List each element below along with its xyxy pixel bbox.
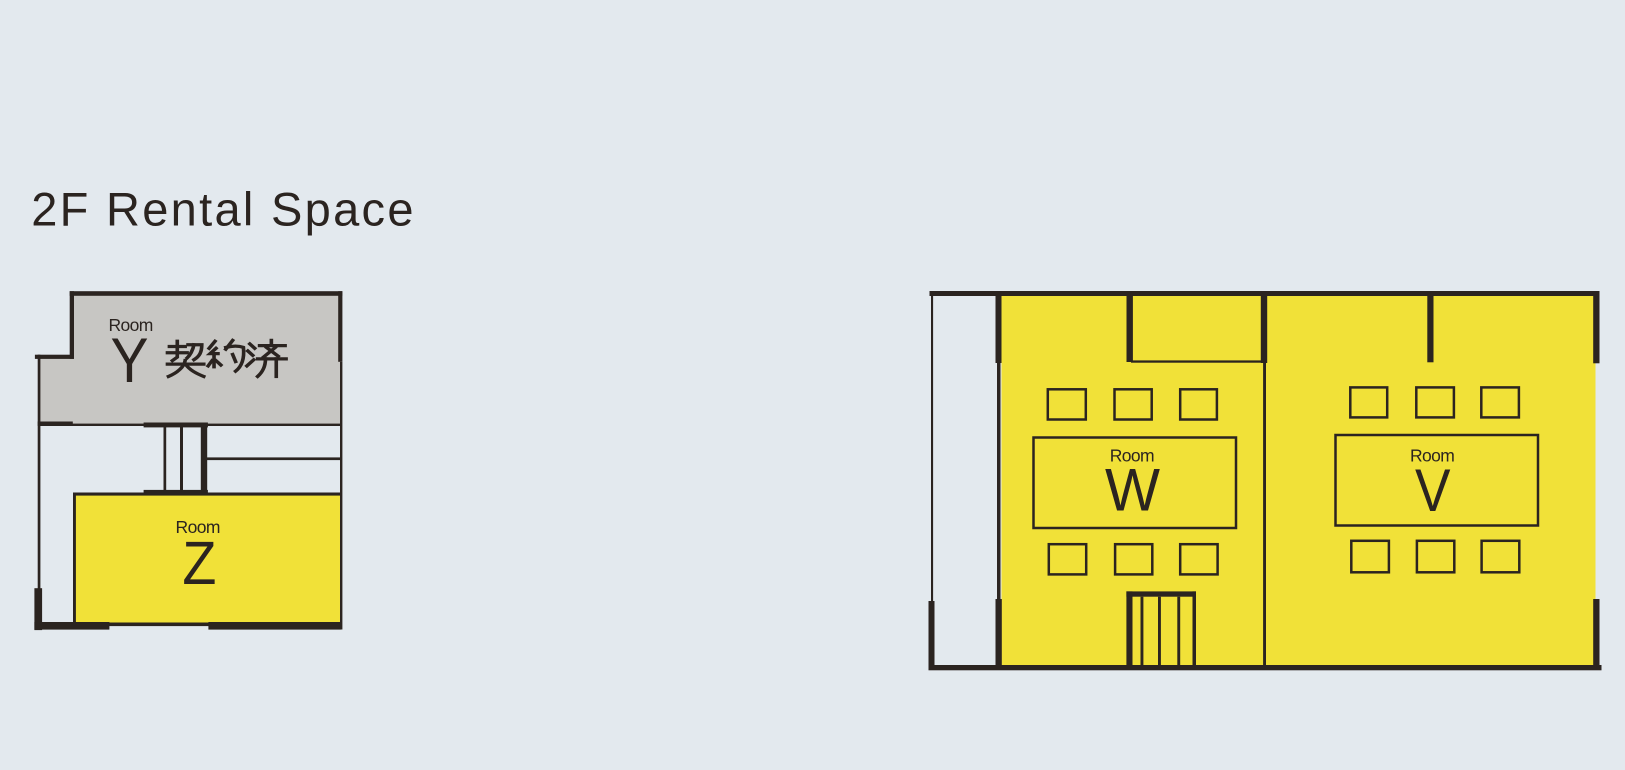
svg-text:W: W — [1105, 457, 1160, 524]
svg-text:2F Rental Space: 2F Rental Space — [31, 183, 416, 236]
svg-text:Z: Z — [182, 529, 216, 597]
svg-text:Y: Y — [111, 326, 149, 396]
svg-text:V: V — [1415, 457, 1451, 524]
